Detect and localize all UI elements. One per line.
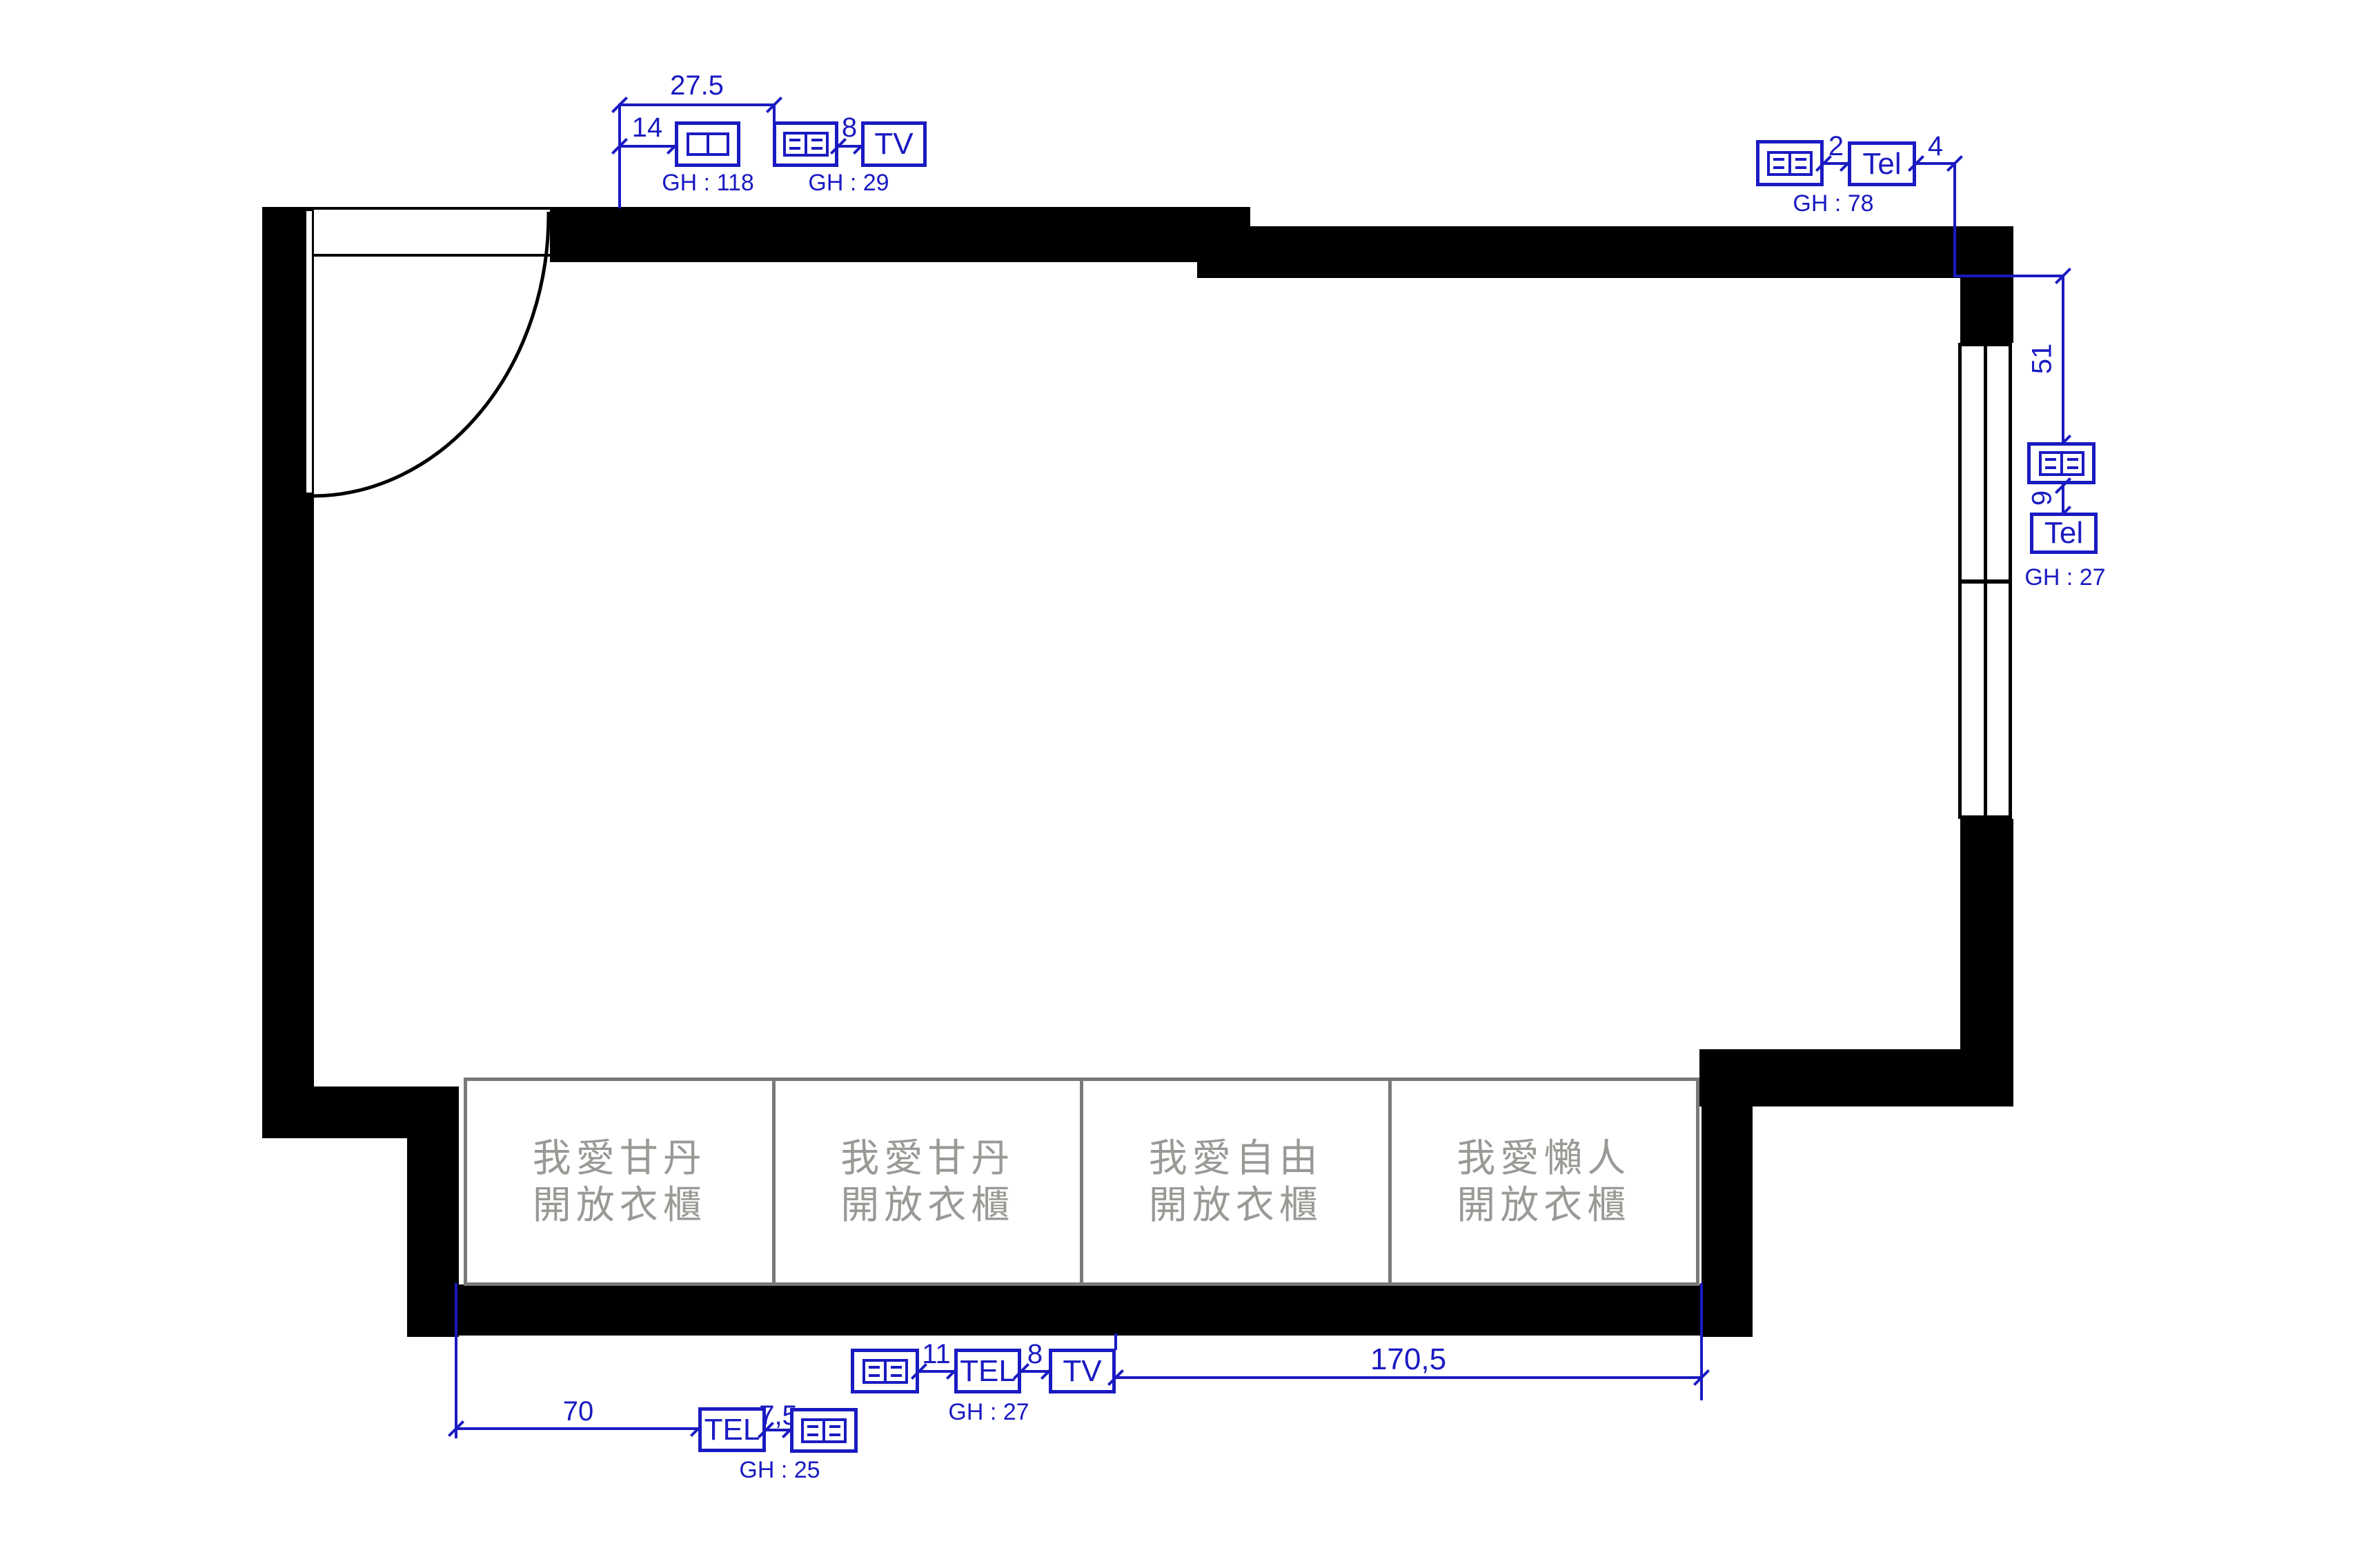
dim-line-51 [2062,276,2064,442]
wall-right-upper [1960,278,2013,343]
wall-top-right-segment [1197,226,2013,278]
dim-text-9: 9 [2027,490,2058,506]
ext-stub-right [773,105,776,123]
power-outlet-icon [2027,442,2095,484]
dim-text-51: 51 [2027,344,2058,375]
tel-label-bottom-left: TEL [704,1413,760,1447]
closet-row: 我愛甘丹 開放衣櫃 我愛甘丹 開放衣櫃 我愛自由 開放衣櫃 我愛懶人 開放衣櫃 [464,1078,1699,1286]
dim-text-2: 2 [1828,131,1844,162]
tv-outlet-box-top: TV [861,121,927,167]
window [1958,343,2012,819]
tv-outlet-box-bottom: TV [1049,1349,1116,1393]
dim-text-4: 4 [1928,131,1943,162]
dim-line-14 [620,145,675,148]
power-outlet-icon [773,121,838,167]
tv-label-top: TV [874,127,913,161]
tel-outlet-box-top: Tel [1848,141,1916,186]
wall-bottom-right-band [1699,1049,2013,1106]
switch-glyph [687,132,729,156]
gh-label-118: GH : 118 [662,170,754,197]
tv-label-bottom: TV [1063,1354,1101,1389]
dim-text-70: 70 [563,1396,594,1427]
closet-1-line2: 開放衣櫃 [533,1182,707,1229]
outlet-glyph [783,132,829,157]
closet-2: 我愛甘丹 開放衣櫃 [772,1081,1081,1282]
closet-4-line1: 我愛懶人 [1457,1135,1630,1182]
floor-plan: 我愛甘丹 開放衣櫃 我愛甘丹 開放衣櫃 我愛自由 開放衣櫃 我愛懶人 開放衣櫃 … [0,0,2357,1568]
closet-4: 我愛懶人 開放衣櫃 [1388,1081,1697,1282]
dim-text-11: 11 [922,1339,951,1370]
tel-label-right: Tel [2044,516,2083,550]
tel-label-top: Tel [1862,147,1901,181]
closet-3-line2: 開放衣櫃 [1149,1182,1323,1229]
tel-outlet-box-right: Tel [2030,513,2098,554]
dim-text-8-top: 8 [842,112,857,143]
ext-line-corner-vertical [1953,163,1956,277]
gh-label-25: GH : 25 [739,1457,820,1484]
wall-bottom-right-strip [1702,1106,1753,1337]
ext-line-corner-horizontal [1955,275,2063,277]
dim-text-27-5: 27.5 [670,70,724,101]
power-outlet-icon [851,1349,919,1393]
dim-line-70 [456,1427,698,1430]
outlet-glyph [862,1359,908,1384]
gh-label-29: GH : 29 [808,170,889,197]
tel-label-bottom-middle: TEL [960,1354,1016,1389]
outlet-glyph [1767,151,1813,176]
ext-stub-tv [1114,1333,1117,1350]
switch-icon [675,121,740,167]
dim-text-170-5: 170,5 [1370,1342,1446,1377]
gh-label-27-right: GH : 27 [2024,564,2105,591]
ext-line-170-5-right [1700,1283,1703,1400]
dim-text-8-bottom: 8 [1027,1339,1043,1370]
closet-2-line1: 我愛甘丹 [840,1135,1014,1182]
closet-1-line1: 我愛甘丹 [533,1135,707,1182]
dim-line-27-5 [620,103,774,106]
wall-bottom [407,1284,1753,1336]
tel-outlet-box-bottom-middle: TEL [954,1349,1021,1393]
wall-right-lower [1960,819,2013,1049]
window-transom [1962,579,2009,584]
gh-label-78: GH : 78 [1793,190,1873,217]
outlet-glyph [2039,451,2084,476]
door-swing-arc [304,204,559,507]
tel-outlet-box-bottom-left: TEL [698,1407,766,1452]
closet-4-line2: 開放衣櫃 [1457,1182,1630,1229]
closet-3: 我愛自由 開放衣櫃 [1080,1081,1388,1282]
closet-1: 我愛甘丹 開放衣櫃 [467,1081,772,1282]
dim-line-11 [919,1370,954,1373]
closet-2-line2: 開放衣櫃 [840,1182,1014,1229]
dim-line-4 [1916,162,1955,165]
wall-left-bottom-stub [262,1086,459,1138]
ext-line-70-left [455,1283,457,1438]
dim-text-14: 14 [632,112,663,143]
power-outlet-icon [1756,140,1824,186]
outlet-glyph [801,1418,847,1443]
ext-line-left [618,103,621,208]
wall-top-left-segment [550,207,1250,262]
closet-3-line1: 我愛自由 [1149,1135,1323,1182]
power-outlet-icon [790,1408,858,1453]
gh-label-27-bottom: GH : 27 [948,1399,1029,1426]
